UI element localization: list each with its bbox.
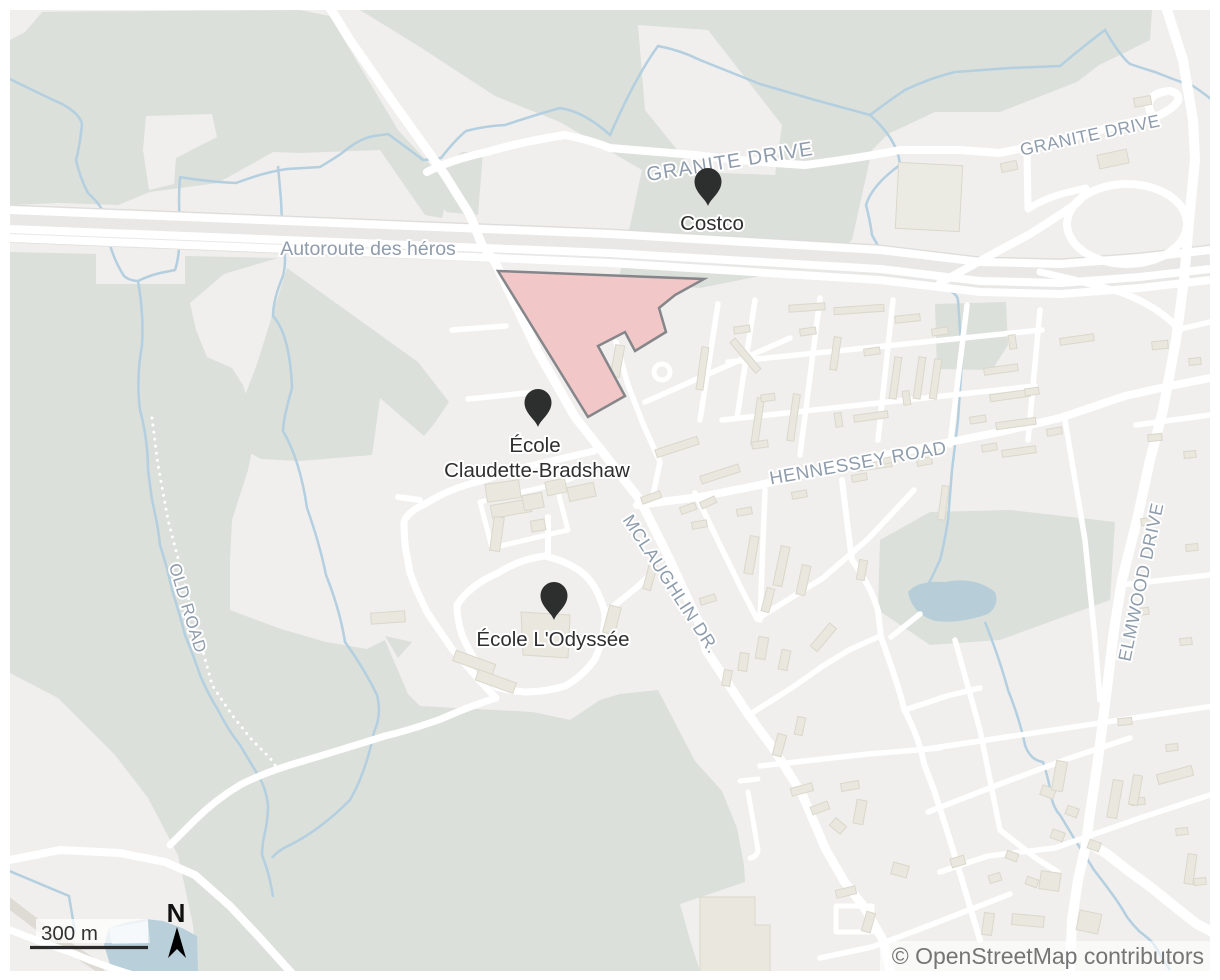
svg-text:Claudette-Bradshaw: Claudette-Bradshaw (444, 459, 630, 482)
svg-text:École: École (509, 434, 560, 457)
svg-text:N: N (167, 898, 186, 928)
svg-text:300 m: 300 m (41, 922, 98, 945)
svg-text:Autoroute des héros: Autoroute des héros (280, 238, 456, 260)
svg-text:© OpenStreetMap contributors: © OpenStreetMap contributors (892, 943, 1204, 969)
svg-text:École L'Odyssée: École L'Odyssée (476, 628, 629, 651)
svg-text:Costco: Costco (680, 212, 744, 235)
